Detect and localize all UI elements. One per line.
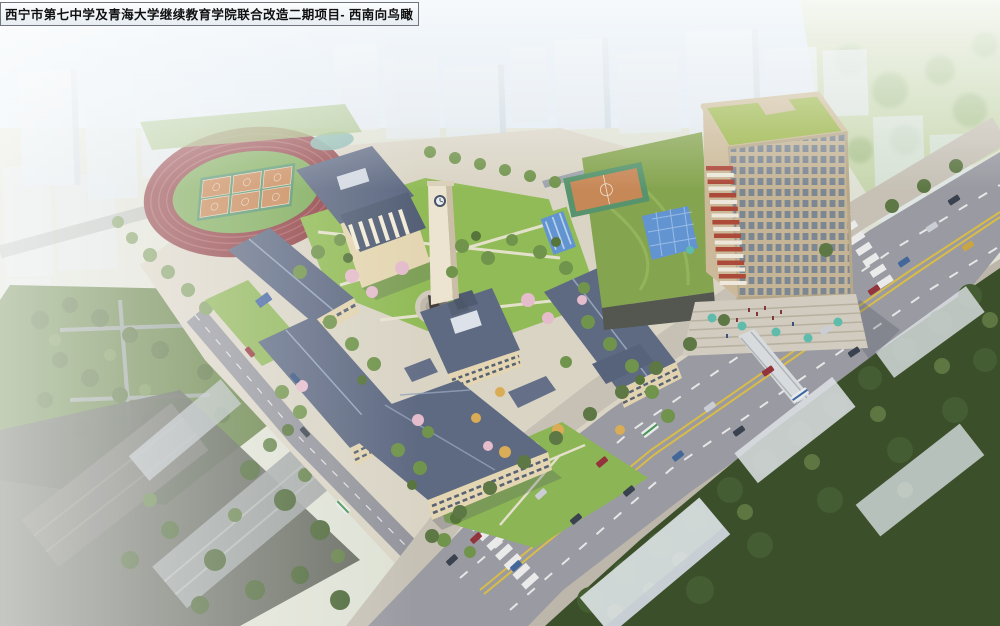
- aerial-scene: [0, 0, 1000, 626]
- rendering-canvas: 西宁市第七中学及青海大学继续教育学院联合改造二期项目- 西南向鸟瞰: [0, 0, 1000, 626]
- haze-veil: [0, 0, 1000, 626]
- title-label: 西宁市第七中学及青海大学继续教育学院联合改造二期项目- 西南向鸟瞰: [0, 2, 419, 26]
- title-text: 西宁市第七中学及青海大学继续教育学院联合改造二期项目- 西南向鸟瞰: [5, 8, 413, 22]
